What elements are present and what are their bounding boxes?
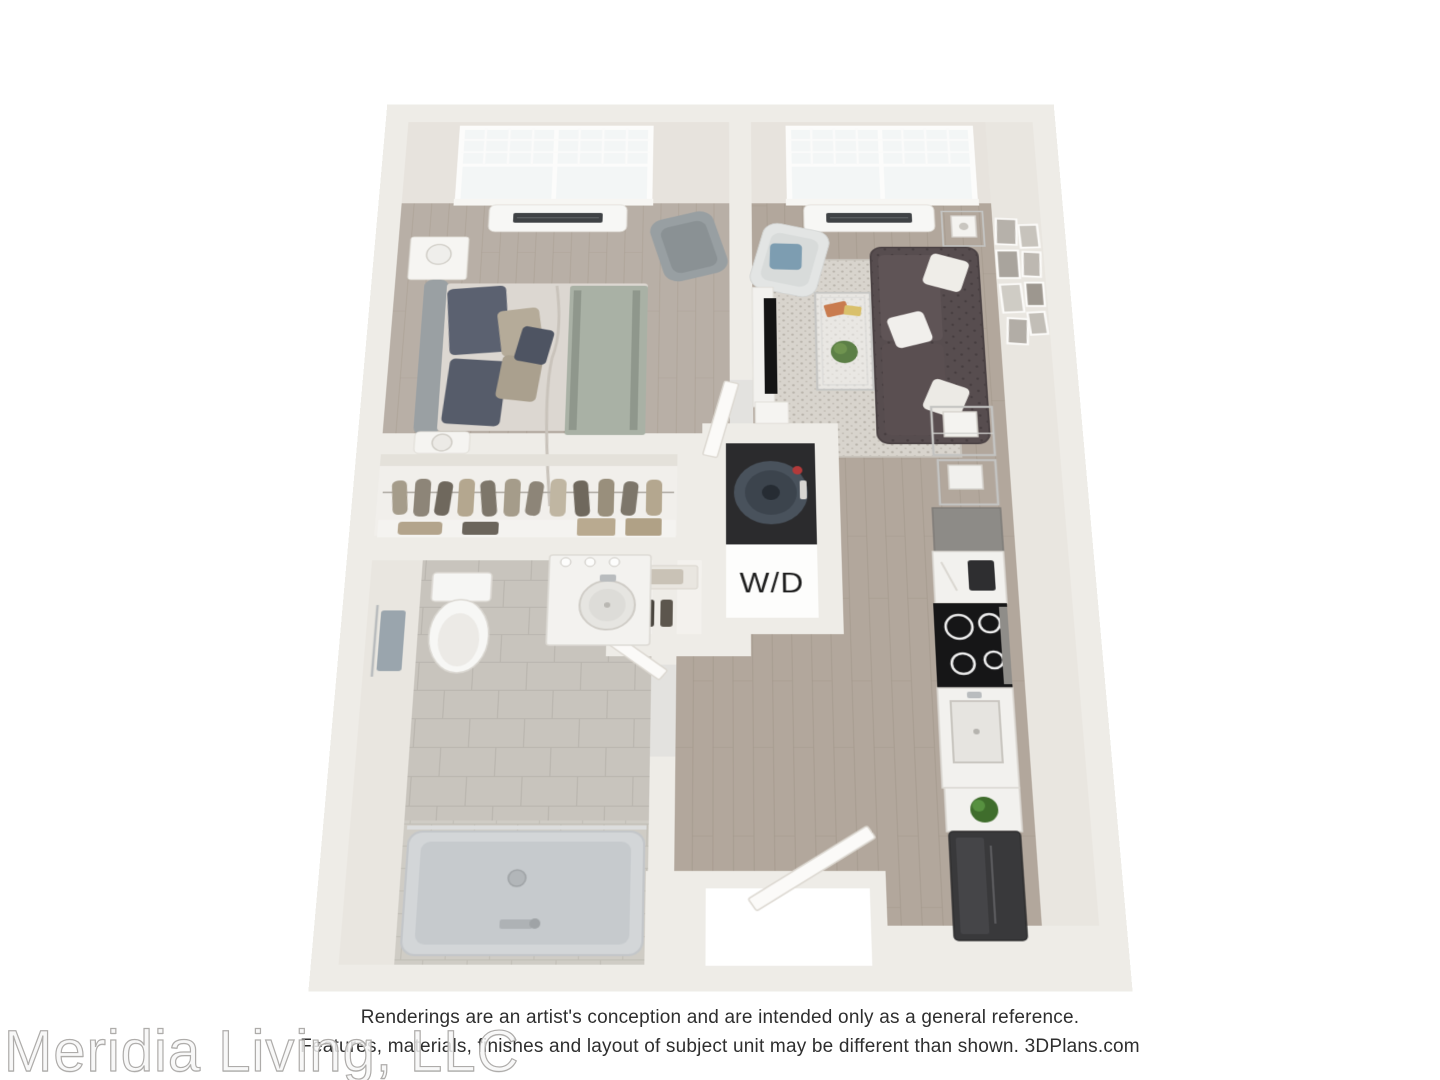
bedroom-ac-unit xyxy=(488,205,627,232)
living-ac-unit xyxy=(804,205,935,232)
floor-plan-render: W/D xyxy=(0,0,1440,1080)
toilet xyxy=(426,573,492,673)
bedside-lamp-table xyxy=(414,432,471,454)
bedroom-window xyxy=(454,128,655,206)
wall-closet-bath xyxy=(372,536,702,561)
kitchen-counter-coffee xyxy=(933,551,1007,603)
wd-front-sill xyxy=(701,618,843,634)
closet-box xyxy=(462,522,499,535)
tv-screen xyxy=(764,298,778,394)
closet-basket xyxy=(397,522,442,535)
cooktop-oven xyxy=(933,603,1012,688)
glass-coffee-table xyxy=(815,293,874,390)
kitchen-sink-counter xyxy=(937,688,1019,788)
kitchen-cabinet-upper xyxy=(932,508,1003,552)
linen-tray xyxy=(647,569,684,584)
vanity-light-2 xyxy=(585,558,595,567)
faucet xyxy=(600,575,616,582)
living-window xyxy=(785,128,979,206)
vanity-sink xyxy=(546,555,651,645)
apartment-3d-plan: W/D xyxy=(308,104,1132,991)
wd-label: W/D xyxy=(740,567,805,598)
hanging-item-2 xyxy=(660,600,673,627)
wall-top xyxy=(386,104,1056,122)
closet-box-tan-2 xyxy=(625,518,662,535)
hall-floor xyxy=(674,634,794,871)
coffee-maker xyxy=(967,560,995,590)
kitchen-counter-plant xyxy=(945,788,1023,832)
entry-opening xyxy=(705,888,872,965)
vanity-light-1 xyxy=(561,558,571,567)
top-wall-face xyxy=(401,122,991,205)
vanity-light-3 xyxy=(609,558,619,567)
towel xyxy=(376,610,405,671)
wall-divider xyxy=(729,122,753,380)
table-book xyxy=(843,305,861,316)
closet-box-tan-1 xyxy=(577,518,616,535)
tub-drain xyxy=(508,870,526,886)
accent-pillow xyxy=(769,243,802,270)
tub-faucet xyxy=(499,919,532,928)
nightstand xyxy=(408,237,469,280)
refrigerator xyxy=(949,832,1028,941)
watermark: Meridia Living, LLC xyxy=(4,1018,519,1080)
bathtub xyxy=(398,828,646,956)
kitchen-faucet xyxy=(967,692,982,699)
